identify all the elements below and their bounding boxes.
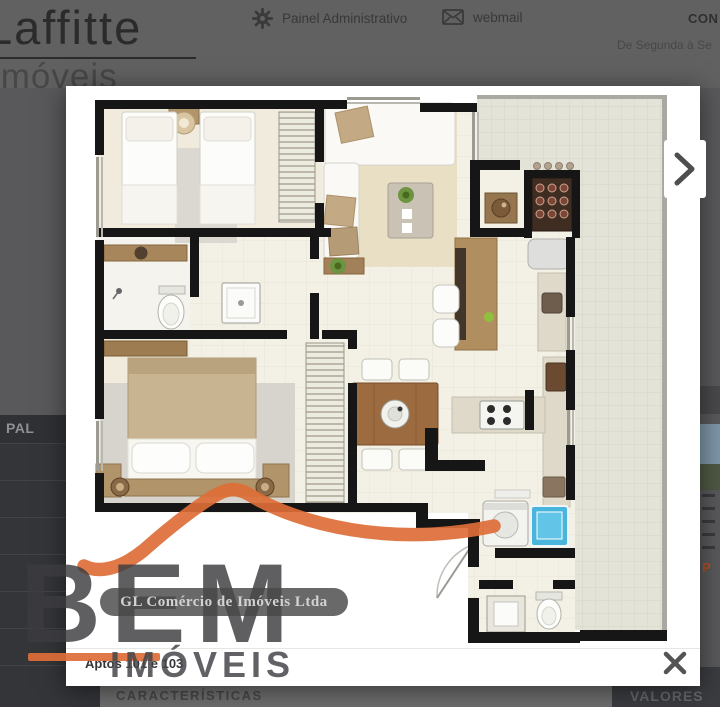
webmail-link[interactable]: webmail bbox=[442, 9, 523, 25]
background-partial-text: P bbox=[702, 560, 711, 575]
admin-panel-label: Painel Administrativo bbox=[282, 11, 407, 26]
section-header-valores[interactable]: VALORES bbox=[612, 685, 720, 707]
close-icon bbox=[662, 650, 688, 676]
floorplan-image bbox=[75, 93, 669, 645]
schedule-text: De Segunda à Se bbox=[617, 38, 712, 52]
background-text-line bbox=[702, 507, 715, 510]
webmail-label: webmail bbox=[473, 10, 523, 25]
bathroom-2 bbox=[222, 283, 260, 323]
admin-panel-link[interactable]: Painel Administrativo bbox=[252, 8, 407, 29]
modal-footer-divider bbox=[66, 648, 700, 649]
envelope-icon bbox=[442, 9, 464, 25]
service-bathroom bbox=[487, 592, 562, 632]
close-button[interactable] bbox=[662, 650, 688, 676]
bedroom-2 bbox=[96, 341, 344, 503]
next-image-button[interactable] bbox=[664, 140, 706, 198]
screenshot-root: Laffitte imóveis Painel Administrativo bbox=[0, 0, 720, 707]
caracteristicas-label: CARACTERÍSTICAS bbox=[116, 688, 263, 703]
chevron-right-icon bbox=[673, 151, 697, 187]
background-dark-corner bbox=[700, 667, 720, 687]
section-header-caracteristicas[interactable]: CARACTERÍSTICAS bbox=[100, 685, 612, 707]
background-photo-thumbnail bbox=[700, 424, 720, 490]
contact-label: CON bbox=[688, 11, 718, 26]
valores-label: VALORES bbox=[630, 688, 704, 704]
background-text-line bbox=[702, 494, 715, 497]
gear-icon bbox=[252, 8, 273, 29]
background-text-line bbox=[702, 520, 715, 523]
background-panel bbox=[700, 386, 720, 414]
site-logo: Laffitte bbox=[0, 0, 142, 56]
background-text-line bbox=[702, 533, 715, 536]
image-caption: Aptos 101 e 103 bbox=[85, 656, 183, 671]
bedroom-1 bbox=[122, 108, 315, 224]
background-text-line bbox=[702, 546, 715, 549]
lightbox-modal: Aptos 101 e 103 bbox=[66, 86, 700, 686]
page-header: Laffitte imóveis Painel Administrativo bbox=[0, 0, 720, 88]
